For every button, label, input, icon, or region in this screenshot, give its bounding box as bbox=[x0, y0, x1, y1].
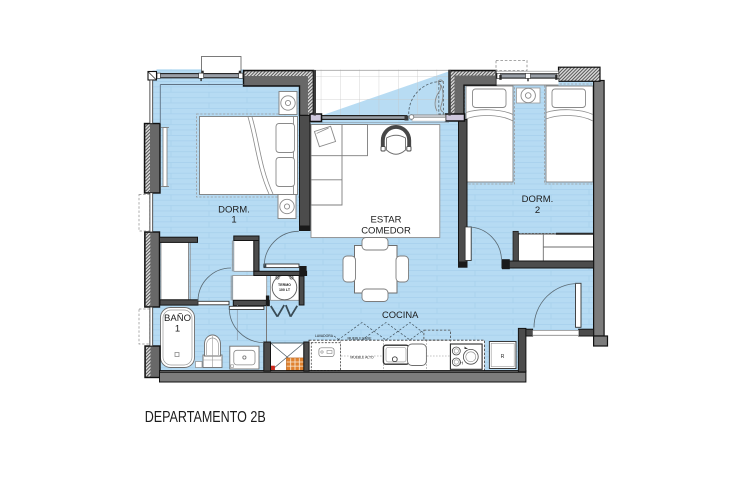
svg-text:COMEDOR: COMEDOR bbox=[361, 225, 411, 236]
svg-text:COCINA: COCINA bbox=[382, 309, 419, 320]
svg-text:1: 1 bbox=[175, 324, 180, 335]
svg-text:BAÑO: BAÑO bbox=[164, 313, 191, 324]
svg-text:MUEBLE BASE: MUEBLE BASE bbox=[348, 337, 373, 341]
svg-text:DORM.: DORM. bbox=[522, 194, 554, 205]
svg-text:2: 2 bbox=[535, 205, 540, 216]
svg-text:MUEBLE ALTO: MUEBLE ALTO bbox=[350, 356, 374, 360]
svg-text:R: R bbox=[501, 354, 505, 360]
svg-text:H: H bbox=[460, 361, 463, 366]
svg-text:LAVADORA: LAVADORA bbox=[315, 334, 334, 338]
svg-text:DEPARTAMENTO 2B: DEPARTAMENTO 2B bbox=[145, 409, 266, 426]
svg-text:1: 1 bbox=[231, 215, 236, 226]
svg-text:ESTAR: ESTAR bbox=[371, 215, 402, 226]
svg-text:100 LT: 100 LT bbox=[279, 288, 291, 292]
svg-text:TERMO: TERMO bbox=[278, 283, 291, 287]
